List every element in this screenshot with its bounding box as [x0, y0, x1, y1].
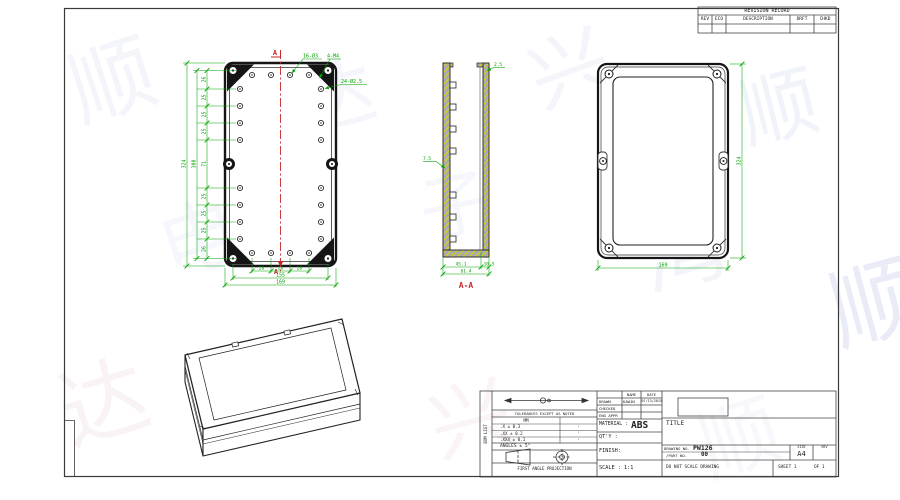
- sheet-of-label: OF 1: [814, 466, 825, 470]
- tolerance-row-2: .XX ± 0.2: [500, 432, 523, 436]
- material-value: ABS: [631, 421, 648, 431]
- revision-table-title: REVISION RECORD: [698, 9, 836, 14]
- revision-col-description: DESCRIPTION: [726, 18, 790, 23]
- drawn-label: DRAWN: [599, 400, 611, 404]
- tolerances-unit: MM: [492, 419, 560, 423]
- name-header: NAME: [622, 393, 641, 397]
- watermark-character: 达: [292, 52, 384, 144]
- watermark-character: 达: [49, 349, 159, 459]
- scale-label: SCALE : 1:1: [599, 466, 633, 471]
- projection-label: FIRST ANGLE PROJECTION: [492, 467, 597, 471]
- revision-col-rev: REV: [698, 18, 712, 23]
- tolerance-row-1: .X ± 0.3: [500, 425, 520, 429]
- sheet-label: SHEET 1: [778, 466, 797, 470]
- drawn-name: KAWIN: [623, 400, 635, 404]
- finish-label: FINISH:: [599, 449, 621, 454]
- watermark-character: 顺: [690, 390, 791, 491]
- title-block-side-label: BOM LIST: [484, 411, 488, 457]
- date-header: DATE: [641, 393, 662, 397]
- tolerance-dot-2: ·: [560, 431, 597, 436]
- drawing-sheet: { "colors": { "dimension_green": "#00a40…: [0, 0, 900, 500]
- watermark-layer: 顺达兴顺电子湾顺达兴顺: [0, 0, 900, 500]
- watermark-character: 湾: [630, 200, 735, 305]
- watermark-character: 顺: [820, 250, 900, 360]
- do-not-scale-label: DO NOT SCALE DRAWING: [666, 466, 719, 470]
- material-label: MATERIAL :: [599, 423, 628, 428]
- drawing-no-label: DRAWING NO.: [664, 447, 690, 451]
- watermark-character: 顺: [59, 29, 166, 136]
- drawn-date: 07/13/2015: [642, 400, 662, 403]
- drawing-no-value: PW126: [693, 445, 713, 452]
- tolerance-dot-1: ·: [560, 425, 597, 430]
- revision-col-chkd: CHKD: [814, 18, 836, 23]
- tolerances-angles: ANGLES ± 5°: [500, 445, 530, 450]
- rev-label: REV: [813, 446, 836, 449]
- tolerance-dot-3: ·: [560, 438, 597, 443]
- revision-col-eco: ECO: [712, 18, 726, 23]
- title-label: TITLE: [666, 421, 684, 427]
- watermark-character: 顺: [732, 62, 827, 157]
- eng-appr-label: ENG APPR: [599, 414, 618, 418]
- watermark-character: 子: [413, 163, 498, 248]
- size-value: A4: [790, 451, 813, 458]
- tolerances-heading: TOLERANCES EXCEPT AS NOTED: [494, 412, 595, 416]
- part-no-label: /PART NO.: [666, 454, 687, 458]
- size-label: SIZE: [790, 446, 813, 449]
- checked-label: CHECKED: [599, 407, 615, 411]
- watermark-character: 电: [150, 190, 251, 291]
- watermark-character: 兴: [519, 19, 622, 122]
- part-no-value: 00: [701, 453, 708, 459]
- tolerance-row-3: .XXX ± 0.1: [500, 438, 525, 442]
- revision-col-drft: DRFT: [790, 18, 814, 23]
- qty-label: QT'Y :: [599, 435, 618, 440]
